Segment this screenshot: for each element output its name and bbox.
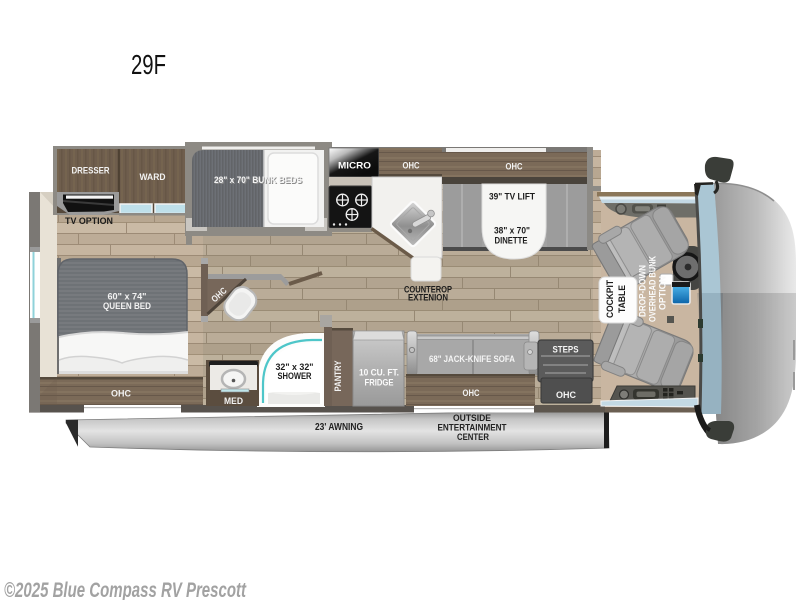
svg-text:OVERHEAD BUNK: OVERHEAD BUNK [648,256,658,322]
svg-text:CENTER: CENTER [457,432,489,443]
svg-text:COCKPIT: COCKPIT [605,280,616,318]
svg-text:OHC: OHC [463,388,480,399]
svg-text:STEPS: STEPS [553,345,579,356]
svg-text:EXTENION: EXTENION [408,293,448,304]
svg-text:OHC: OHC [506,162,523,173]
svg-text:28" x 70" BUNK BEDS: 28" x 70" BUNK BEDS [214,175,302,186]
svg-text:DROP-DOWN: DROP-DOWN [638,265,648,317]
svg-text:39" TV LIFT: 39" TV LIFT [489,192,535,203]
svg-text:DRESSER: DRESSER [72,166,110,177]
svg-text:OHC: OHC [556,390,576,401]
svg-text:TV OPTION: TV OPTION [65,216,113,226]
svg-text:OPTION: OPTION [658,276,668,310]
svg-text:68" JACK-KNIFE SOFA: 68" JACK-KNIFE SOFA [429,354,515,365]
svg-text:QUEEN BED: QUEEN BED [103,301,151,312]
svg-text:WARD: WARD [140,172,166,183]
svg-text:OHC: OHC [403,161,420,172]
svg-text:PANTRY: PANTRY [333,361,343,392]
svg-text:23' AWNING: 23' AWNING [315,422,363,433]
svg-text:OHC: OHC [111,389,131,400]
svg-text:29F: 29F [131,49,166,80]
svg-text:TABLE: TABLE [617,285,628,313]
svg-text:MED: MED [224,396,243,407]
svg-text:SHOWER: SHOWER [278,371,312,382]
svg-text:DINETTE: DINETTE [495,236,528,247]
svg-text:MICRO: MICRO [338,161,371,172]
svg-text:©2025 Blue Compass RV Prescott: ©2025 Blue Compass RV Prescott [4,579,247,600]
svg-text:FRIDGE: FRIDGE [365,378,394,389]
